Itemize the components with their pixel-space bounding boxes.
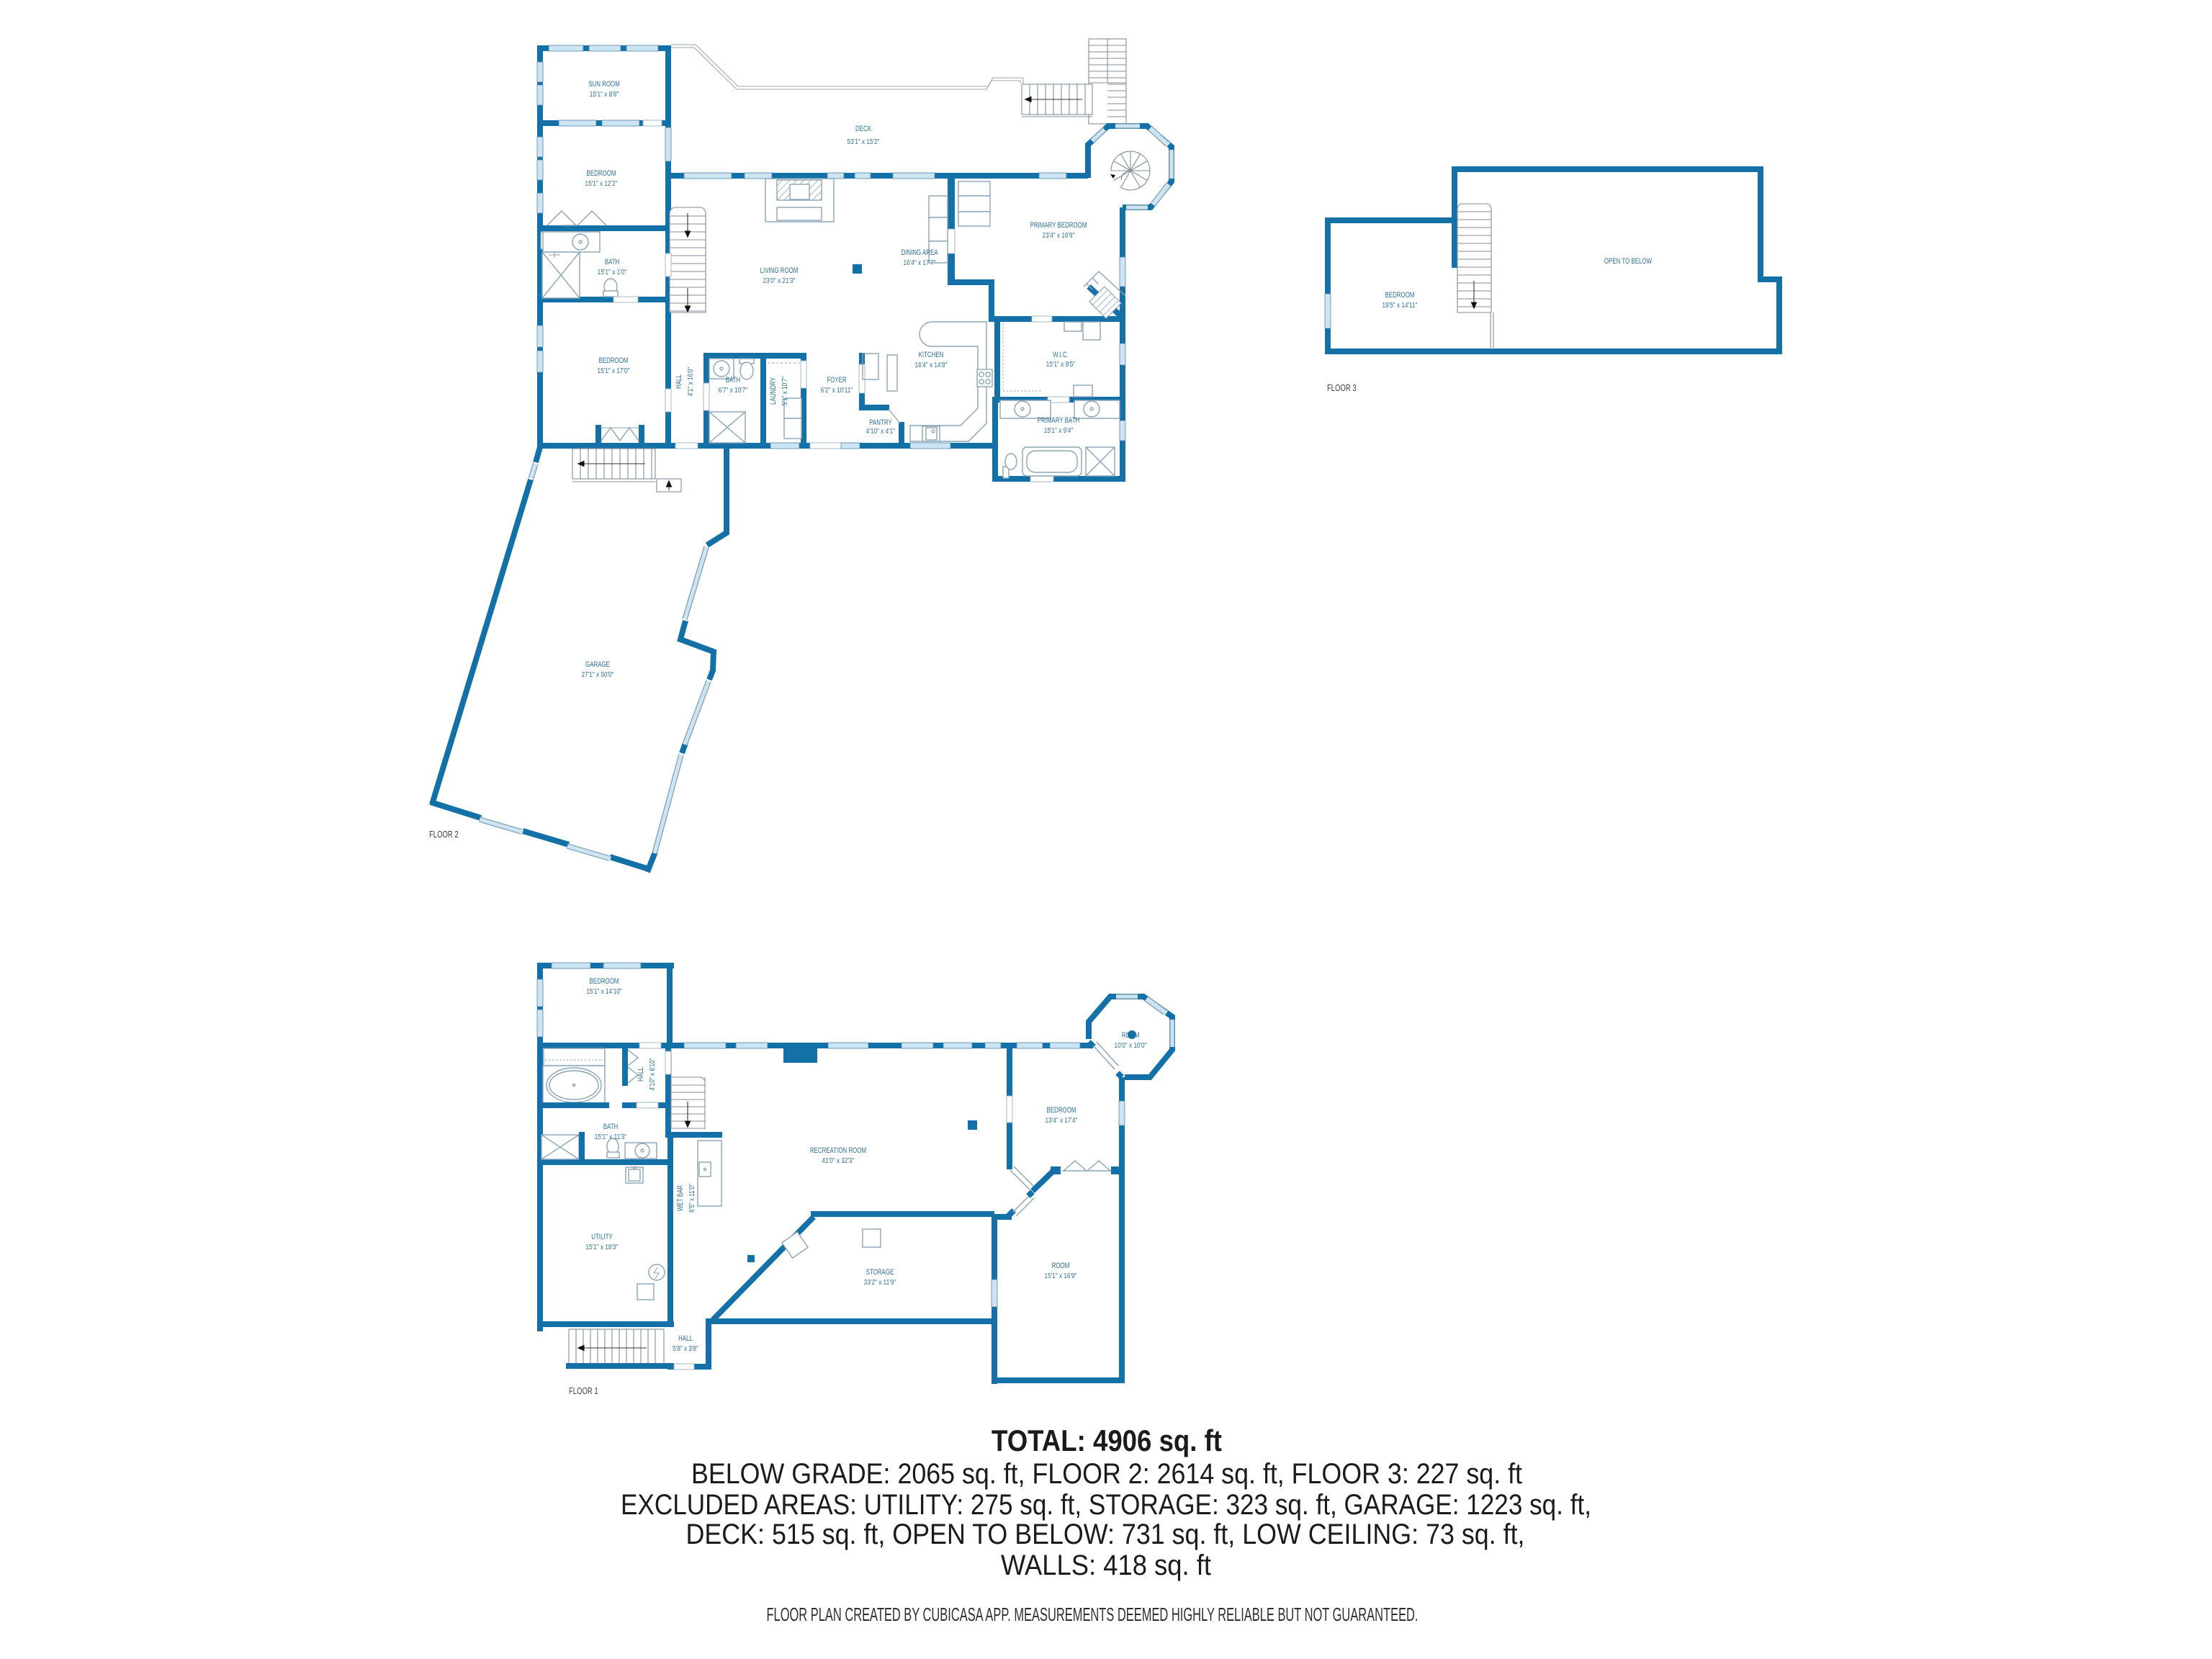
svg-text:53'1" x 15'2": 53'1" x 15'2" — [848, 138, 880, 146]
svg-text:5'1" x 10'7": 5'1" x 10'7" — [781, 376, 789, 405]
svg-text:BEDROOM: BEDROOM — [1047, 1106, 1076, 1115]
svg-text:FLOOR PLAN CREATED BY CUBICASA: FLOOR PLAN CREATED BY CUBICASA APP. MEAS… — [767, 1604, 1419, 1625]
svg-text:13'4" x 17'4": 13'4" x 17'4" — [1046, 1117, 1078, 1125]
svg-text:15'1" x 11'3": 15'1" x 11'3" — [595, 1133, 627, 1141]
svg-text:UTILITY: UTILITY — [591, 1233, 613, 1241]
svg-text:WET BAR: WET BAR — [676, 1185, 685, 1211]
svg-text:HALL: HALL — [675, 374, 683, 389]
svg-text:15'1" x 9'5": 15'1" x 9'5" — [1046, 361, 1076, 369]
svg-text:RECREATION ROOM: RECREATION ROOM — [810, 1146, 866, 1155]
svg-text:PANTRY: PANTRY — [869, 418, 892, 427]
svg-text:BATH: BATH — [726, 376, 741, 385]
svg-text:23'4" x 16'9": 23'4" x 16'9" — [1043, 232, 1075, 240]
svg-text:19'5" x 14'11": 19'5" x 14'11" — [1382, 302, 1418, 310]
svg-text:FLOOR 1: FLOOR 1 — [569, 1385, 598, 1396]
svg-text:GARAGE: GARAGE — [585, 660, 610, 669]
svg-text:16'4" x 17'7": 16'4" x 17'7" — [904, 259, 936, 267]
svg-text:W.I.C.: W.I.C. — [1053, 351, 1069, 359]
svg-text:DINING AREA: DINING AREA — [901, 248, 938, 257]
svg-text:23'0" x 21'3": 23'0" x 21'3" — [763, 277, 796, 285]
svg-text:5'8" x 3'8": 5'8" x 3'8" — [673, 1345, 698, 1353]
svg-text:ROOM: ROOM — [1052, 1262, 1070, 1270]
svg-text:6'7" x 10'7": 6'7" x 10'7" — [719, 387, 748, 395]
svg-text:DECK: DECK — [855, 125, 871, 133]
svg-text:OPEN TO BELOW: OPEN TO BELOW — [1604, 257, 1653, 266]
svg-text:15'1" x 18'3": 15'1" x 18'3" — [586, 1244, 619, 1251]
svg-text:6'5" x 11'0": 6'5" x 11'0" — [688, 1184, 696, 1213]
svg-text:4'10" x 4'1": 4'10" x 4'1" — [866, 428, 896, 436]
svg-text:15'1" x 17'0": 15'1" x 17'0" — [598, 367, 630, 375]
svg-text:10'0" x 10'0": 10'0" x 10'0" — [1115, 1042, 1147, 1050]
svg-text:HALL: HALL — [637, 1067, 645, 1082]
svg-text:BEDROOM: BEDROOM — [599, 356, 629, 365]
svg-text:33'2" x 11'9": 33'2" x 11'9" — [864, 1279, 896, 1287]
svg-text:SUN ROOM: SUN ROOM — [588, 80, 620, 89]
svg-text:FOYER: FOYER — [827, 376, 846, 385]
svg-text:41'0" x 32'3": 41'0" x 32'3" — [822, 1157, 855, 1165]
svg-text:EXCLUDED AREAS: UTILITY: 275 s: EXCLUDED AREAS: UTILITY: 275 sq. ft, STO… — [621, 1489, 1591, 1521]
svg-text:4'10" x 6'10": 4'10" x 6'10" — [649, 1058, 657, 1090]
svg-text:BELOW GRADE: 2065 sq. ft, FLOO: BELOW GRADE: 2065 sq. ft, FLOOR 2: 2614 … — [691, 1458, 1522, 1490]
svg-text:KITCHEN: KITCHEN — [919, 351, 944, 359]
svg-text:6'2" x 10'11": 6'2" x 10'11" — [821, 387, 853, 395]
svg-text:BATH: BATH — [603, 1123, 619, 1131]
svg-text:BEDROOM: BEDROOM — [590, 977, 619, 986]
svg-text:FLOOR 2: FLOOR 2 — [429, 829, 459, 840]
svg-text:FLOOR 3: FLOOR 3 — [1327, 382, 1357, 393]
svg-text:HALL: HALL — [678, 1334, 693, 1343]
svg-text:16'4" x 14'8": 16'4" x 14'8" — [915, 361, 948, 369]
svg-text:15'1" x 14'10": 15'1" x 14'10" — [586, 988, 622, 996]
svg-text:15'1" x 1'0": 15'1" x 1'0" — [598, 269, 627, 276]
svg-text:15'1" x 16'9": 15'1" x 16'9" — [1045, 1272, 1077, 1280]
svg-text:WALLS: 418 sq. ft: WALLS: 418 sq. ft — [1001, 1550, 1211, 1581]
svg-text:27'1" x 50'0": 27'1" x 50'0" — [582, 671, 614, 679]
svg-text:LIVING ROOM: LIVING ROOM — [760, 266, 799, 275]
svg-text:STORAGE: STORAGE — [866, 1268, 894, 1277]
svg-text:4'1" x 16'0": 4'1" x 16'0" — [687, 367, 695, 396]
svg-text:15'1" x 12'2": 15'1" x 12'2" — [585, 180, 618, 188]
svg-text:BEDROOM: BEDROOM — [1385, 291, 1415, 300]
svg-text:PRIMARY BATH: PRIMARY BATH — [1038, 416, 1080, 425]
svg-text:BEDROOM: BEDROOM — [587, 169, 616, 178]
svg-text:15'1" x 9'4": 15'1" x 9'4" — [1044, 427, 1074, 435]
svg-text:15'1" x 8'8": 15'1" x 8'8" — [590, 91, 619, 99]
svg-text:PRIMARY BEDROOM: PRIMARY BEDROOM — [1030, 221, 1087, 230]
svg-text:BATH: BATH — [605, 258, 620, 266]
svg-text:ROOM: ROOM — [1122, 1031, 1140, 1040]
svg-text:TOTAL: 4906 sq. ft: TOTAL: 4906 sq. ft — [992, 1424, 1222, 1457]
svg-text:DECK: 515 sq. ft, OPEN TO BELO: DECK: 515 sq. ft, OPEN TO BELOW: 731 sq.… — [686, 1519, 1525, 1550]
svg-text:LAUNDRY: LAUNDRY — [769, 377, 778, 405]
